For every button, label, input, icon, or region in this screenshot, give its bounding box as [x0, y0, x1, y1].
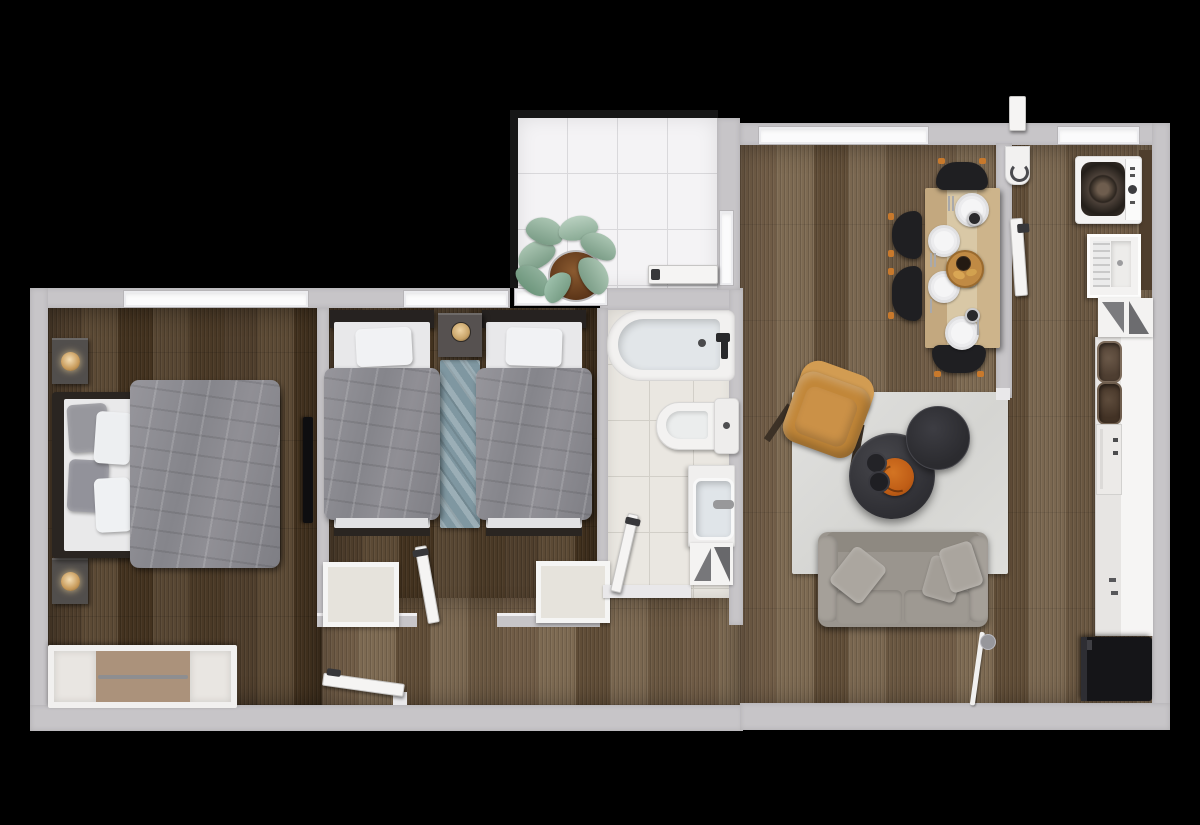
laundry-basin — [1087, 234, 1141, 298]
wardrobe — [48, 645, 237, 708]
pillow — [355, 327, 413, 368]
chair-leg-icon — [977, 371, 984, 377]
cutlery-icon — [930, 253, 932, 267]
kitchen-window — [1057, 126, 1140, 145]
table-lamp-icon — [61, 352, 80, 371]
button-icon — [1130, 174, 1135, 177]
chair-leg-icon — [888, 250, 894, 257]
entry-fixture — [1005, 146, 1030, 185]
second-bedroom-window — [403, 290, 509, 308]
floor-lamp — [974, 628, 998, 708]
table-lamp-icon — [61, 572, 80, 591]
outer-wall-right — [1152, 123, 1170, 730]
candle-holder-icon — [868, 471, 890, 493]
balcony-railing-top — [510, 110, 718, 118]
shared-nightstand — [438, 313, 482, 357]
cutlery-icon — [948, 196, 950, 211]
bathtub — [607, 310, 735, 381]
washing-machine — [1075, 156, 1142, 224]
toilet-seat — [666, 411, 708, 439]
duvet — [130, 380, 280, 568]
wardrobe-shelf-right — [190, 651, 231, 702]
toilet — [656, 398, 738, 452]
duvet — [476, 368, 592, 520]
hook-ring-icon — [1010, 163, 1029, 182]
chair-leg-icon — [888, 213, 894, 220]
cutlery-icon — [952, 196, 954, 211]
oven — [1096, 424, 1122, 495]
footboard — [486, 528, 582, 536]
twin-bed-left — [330, 310, 434, 536]
croissant-icon — [965, 268, 977, 278]
wardrobe-hanging-section — [96, 651, 190, 702]
potted-plant — [514, 216, 618, 304]
drain-icon — [698, 339, 706, 347]
knob-icon — [1113, 451, 1118, 455]
cutlery-icon — [977, 320, 979, 335]
washer-control-panel — [1125, 159, 1140, 220]
dining-chair-left-2 — [892, 266, 922, 321]
door-handle — [326, 668, 341, 677]
door-handle — [412, 548, 429, 558]
clothes-rail — [98, 675, 188, 679]
door-handle — [651, 269, 660, 280]
sink-faucet-icon — [713, 500, 734, 509]
cutlery-icon — [930, 299, 932, 313]
pillow — [94, 477, 133, 533]
button-icon — [1130, 167, 1135, 170]
dining-kitchen-wall-cap — [996, 388, 1010, 400]
sofa — [818, 532, 988, 627]
cabinet-handle-icon — [1109, 578, 1116, 582]
pillow — [505, 327, 562, 367]
duvet — [324, 368, 440, 520]
nightstand-top — [52, 338, 88, 384]
master-bedroom-window — [123, 290, 309, 308]
chair-leg-icon — [888, 312, 894, 319]
button-icon — [1130, 201, 1135, 204]
master-bed — [52, 392, 278, 558]
toilet-bowl — [656, 402, 720, 450]
twin-bed-right — [482, 310, 586, 536]
outer-wall-bottom-left — [30, 705, 743, 731]
dining-chair-top — [936, 162, 988, 190]
breakfast-tray — [946, 250, 984, 288]
tub-faucet-icon — [721, 339, 728, 359]
balcony-living-glass — [719, 210, 734, 286]
coffee-table-small — [906, 406, 970, 470]
oven-door-line — [1100, 429, 1103, 489]
kitchen-towel-cabinet — [1098, 298, 1153, 337]
nightstand-bottom — [52, 558, 88, 604]
cup — [967, 211, 982, 226]
chair-leg-icon — [888, 268, 894, 275]
sink-basin — [693, 478, 734, 540]
toilet-cistern — [714, 398, 739, 454]
chair-leg-icon — [979, 158, 986, 164]
living-room-window — [758, 126, 929, 145]
door-handle — [1017, 223, 1030, 233]
balcony-door — [648, 265, 718, 284]
alarm-clock-icon — [451, 322, 471, 342]
washer-drum-icon — [1081, 162, 1125, 216]
fridge — [1081, 637, 1152, 701]
towel-icon — [1102, 302, 1124, 333]
wardrobe-shelf-left — [54, 651, 96, 702]
entry-door — [1009, 96, 1026, 131]
twin-runner-rug — [440, 360, 480, 528]
towel-icon — [1129, 301, 1149, 334]
bedside-mat-right — [536, 561, 610, 623]
bedside-mat-left — [323, 562, 399, 627]
washboard-icon — [1093, 241, 1110, 287]
wall-tv — [303, 417, 313, 523]
bathroom-top-wall — [600, 288, 743, 310]
chair-leg-icon — [934, 371, 941, 377]
kitchen-sink-basin-1 — [1097, 341, 1122, 383]
chair-leg-icon — [938, 158, 945, 164]
outer-wall-left — [30, 288, 48, 730]
fridge-handle-icon — [1087, 640, 1092, 650]
knob-icon — [1113, 438, 1118, 442]
drain-icon — [1117, 260, 1123, 266]
kitchen-sink-basin-2 — [1097, 382, 1122, 425]
cutlery-icon — [934, 253, 936, 267]
towel-cabinet — [690, 543, 733, 585]
flush-button-icon — [723, 422, 730, 429]
towel-icon — [694, 548, 711, 581]
footboard — [334, 528, 430, 536]
lamp-head-icon — [980, 634, 996, 650]
dial-icon — [1128, 185, 1137, 194]
cabinet-handle-icon — [1111, 591, 1118, 595]
outer-wall-bottom-right — [740, 703, 1170, 730]
towel-icon — [714, 547, 730, 582]
pillow — [93, 411, 133, 465]
floor-plan-render — [0, 0, 1200, 825]
bathroom-vanity — [688, 465, 735, 547]
